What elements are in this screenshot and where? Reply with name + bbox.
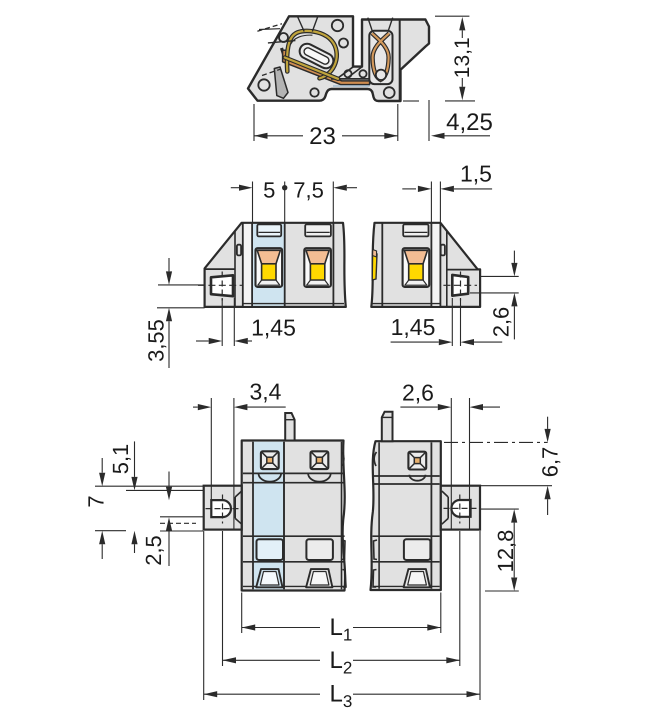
svg-text:3,55: 3,55	[144, 319, 169, 362]
svg-text:7: 7	[84, 495, 109, 507]
svg-text:23: 23	[309, 123, 336, 150]
svg-text:4,25: 4,25	[446, 109, 493, 136]
svg-text:L2: L2	[330, 647, 353, 677]
svg-text:2,6: 2,6	[489, 307, 514, 338]
svg-text:13,1: 13,1	[451, 37, 474, 78]
svg-text:2,6: 2,6	[402, 380, 434, 406]
svg-text:1,5: 1,5	[460, 161, 492, 187]
svg-text:1,45: 1,45	[251, 315, 296, 341]
svg-text:L1: L1	[330, 614, 353, 644]
svg-text:L3: L3	[330, 681, 353, 711]
svg-text:7,5: 7,5	[293, 178, 324, 203]
svg-text:2,5: 2,5	[141, 535, 166, 566]
svg-text:6,7: 6,7	[538, 447, 563, 478]
svg-text:5: 5	[263, 178, 275, 203]
svg-text:3,4: 3,4	[250, 379, 282, 405]
svg-text:1,45: 1,45	[391, 314, 436, 340]
svg-text:5,1: 5,1	[108, 444, 133, 475]
svg-text:12,8: 12,8	[493, 530, 518, 573]
